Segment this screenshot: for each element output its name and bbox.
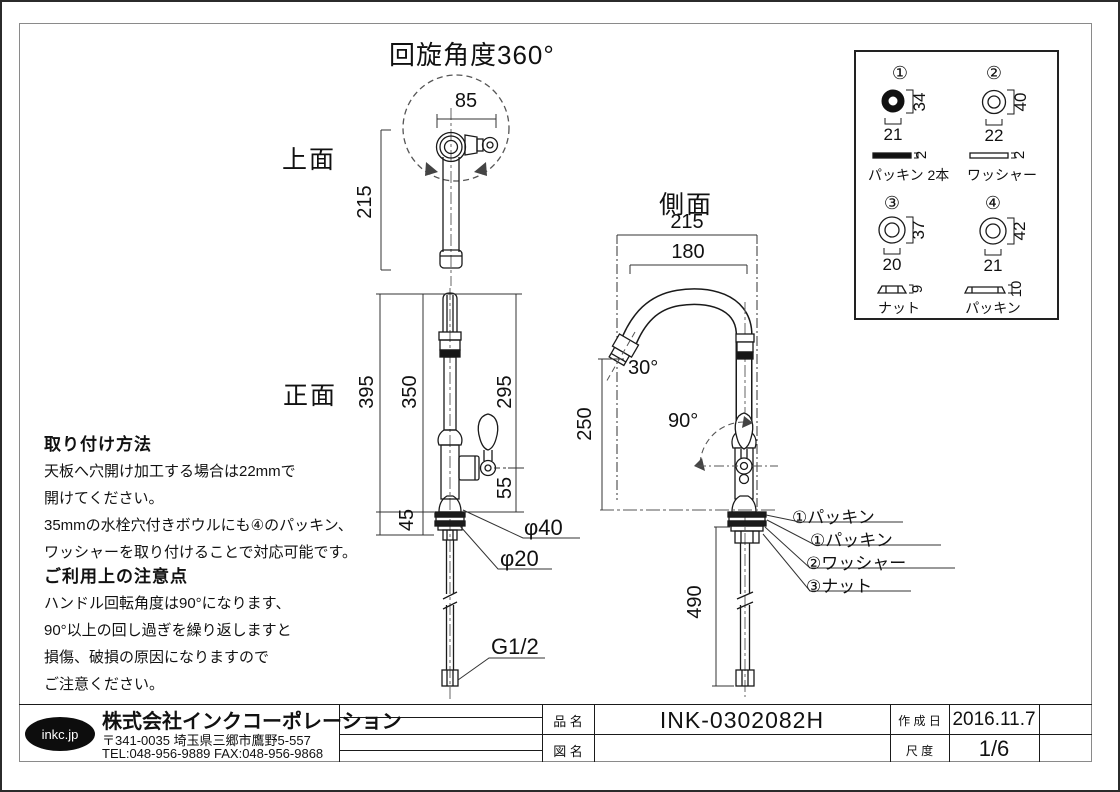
date-value: 2016.11.7: [949, 709, 1039, 731]
part2-id: 22: [979, 126, 1009, 146]
dim-front-total: 395: [356, 362, 378, 422]
dim-front-handle: 55: [494, 458, 516, 518]
part3-od: 37: [909, 200, 931, 260]
dim-dia20: φ20: [500, 546, 539, 572]
rotation-angle-note: 回旋角度360°: [389, 35, 555, 72]
product-name-label: 品 名: [542, 711, 594, 730]
rotation-arrow-right: [474, 162, 487, 176]
dim-front-spout: 295: [494, 362, 516, 422]
install-note-line: 開けてください。: [44, 487, 164, 508]
part4-od: 42: [1010, 201, 1032, 261]
dim-side-depth: 215: [657, 211, 717, 234]
part3-id: 20: [877, 255, 907, 275]
dim-side-handle-angle: 90°: [668, 410, 698, 433]
part1-name: パッキン 2本: [868, 165, 940, 185]
caution-note-line: 90°以上の回し過ぎを繰り返しますと: [44, 619, 292, 640]
callout-packing-2: ①パッキン: [810, 526, 893, 551]
install-note-line: ワッシャーを取り付けることで対応可能です。: [44, 541, 357, 562]
dim-top-width: 85: [436, 90, 496, 113]
view-label-front: 正面: [283, 376, 337, 412]
drawing-name-label: 図 名: [542, 741, 594, 760]
front-dimension-lines: [376, 294, 580, 680]
scale-value: 1/6: [949, 736, 1039, 762]
dim-side-hose: 490: [684, 572, 706, 632]
part2-number: ②: [979, 63, 1009, 84]
callout-packing-1: ①パッキン: [792, 503, 875, 528]
company-logo: inkc.jp: [25, 717, 95, 751]
part3-number: ③: [877, 193, 907, 214]
install-note-line: 天板へ穴開け加工する場合は22mmで: [44, 460, 296, 481]
install-note-line: 35mmの水栓穴付きボウルにも④のパッキン、: [44, 514, 353, 535]
dim-front-above: 350: [399, 362, 421, 422]
dim-front-under: 45: [396, 490, 418, 550]
product-name-value: INK-0302082H: [594, 707, 890, 734]
dim-side-tip-angle: 30°: [628, 357, 658, 380]
caution-note-line: 損傷、破損の原因になりますので: [44, 646, 269, 667]
scale-label: 尺 度: [890, 742, 949, 759]
part1-od: 34: [910, 72, 932, 132]
rotation-arrow-left: [425, 162, 438, 176]
caution-note-line: ハンドル回転角度は90°になります、: [44, 592, 291, 613]
part2-od: 40: [1011, 72, 1033, 132]
dim-thread: G1/2: [491, 634, 539, 660]
dim-top-depth: 215: [354, 172, 376, 232]
part1-id: 21: [878, 125, 908, 145]
caution-notes-title: ご利用上の注意点: [44, 562, 188, 587]
part2-name: ワッシャー: [966, 165, 1038, 185]
callout-nut: ③ナット: [806, 572, 872, 597]
part4-name: パッキン: [957, 298, 1029, 318]
dim-side-reach: 180: [658, 241, 718, 264]
dim-dia40: φ40: [524, 515, 563, 541]
caution-note-line: ご注意ください。: [44, 673, 164, 694]
dim-side-outlet: 250: [574, 394, 596, 454]
company-contact: TEL:048-956-9889 FAX:048-956-9868: [102, 746, 323, 761]
part4-id: 21: [978, 256, 1008, 276]
view-label-top: 上面: [282, 140, 336, 176]
callout-washer: ②ワッシャー: [806, 549, 906, 574]
part3-name: ナット: [863, 298, 935, 318]
drawing-sheet: 回旋角度360° 上面 正面 側面 85 215 395 350 295 55 …: [0, 0, 1120, 792]
date-label: 作 成 日: [890, 712, 949, 729]
part4-number: ④: [978, 193, 1008, 214]
install-notes-title: 取り付け方法: [44, 430, 152, 455]
